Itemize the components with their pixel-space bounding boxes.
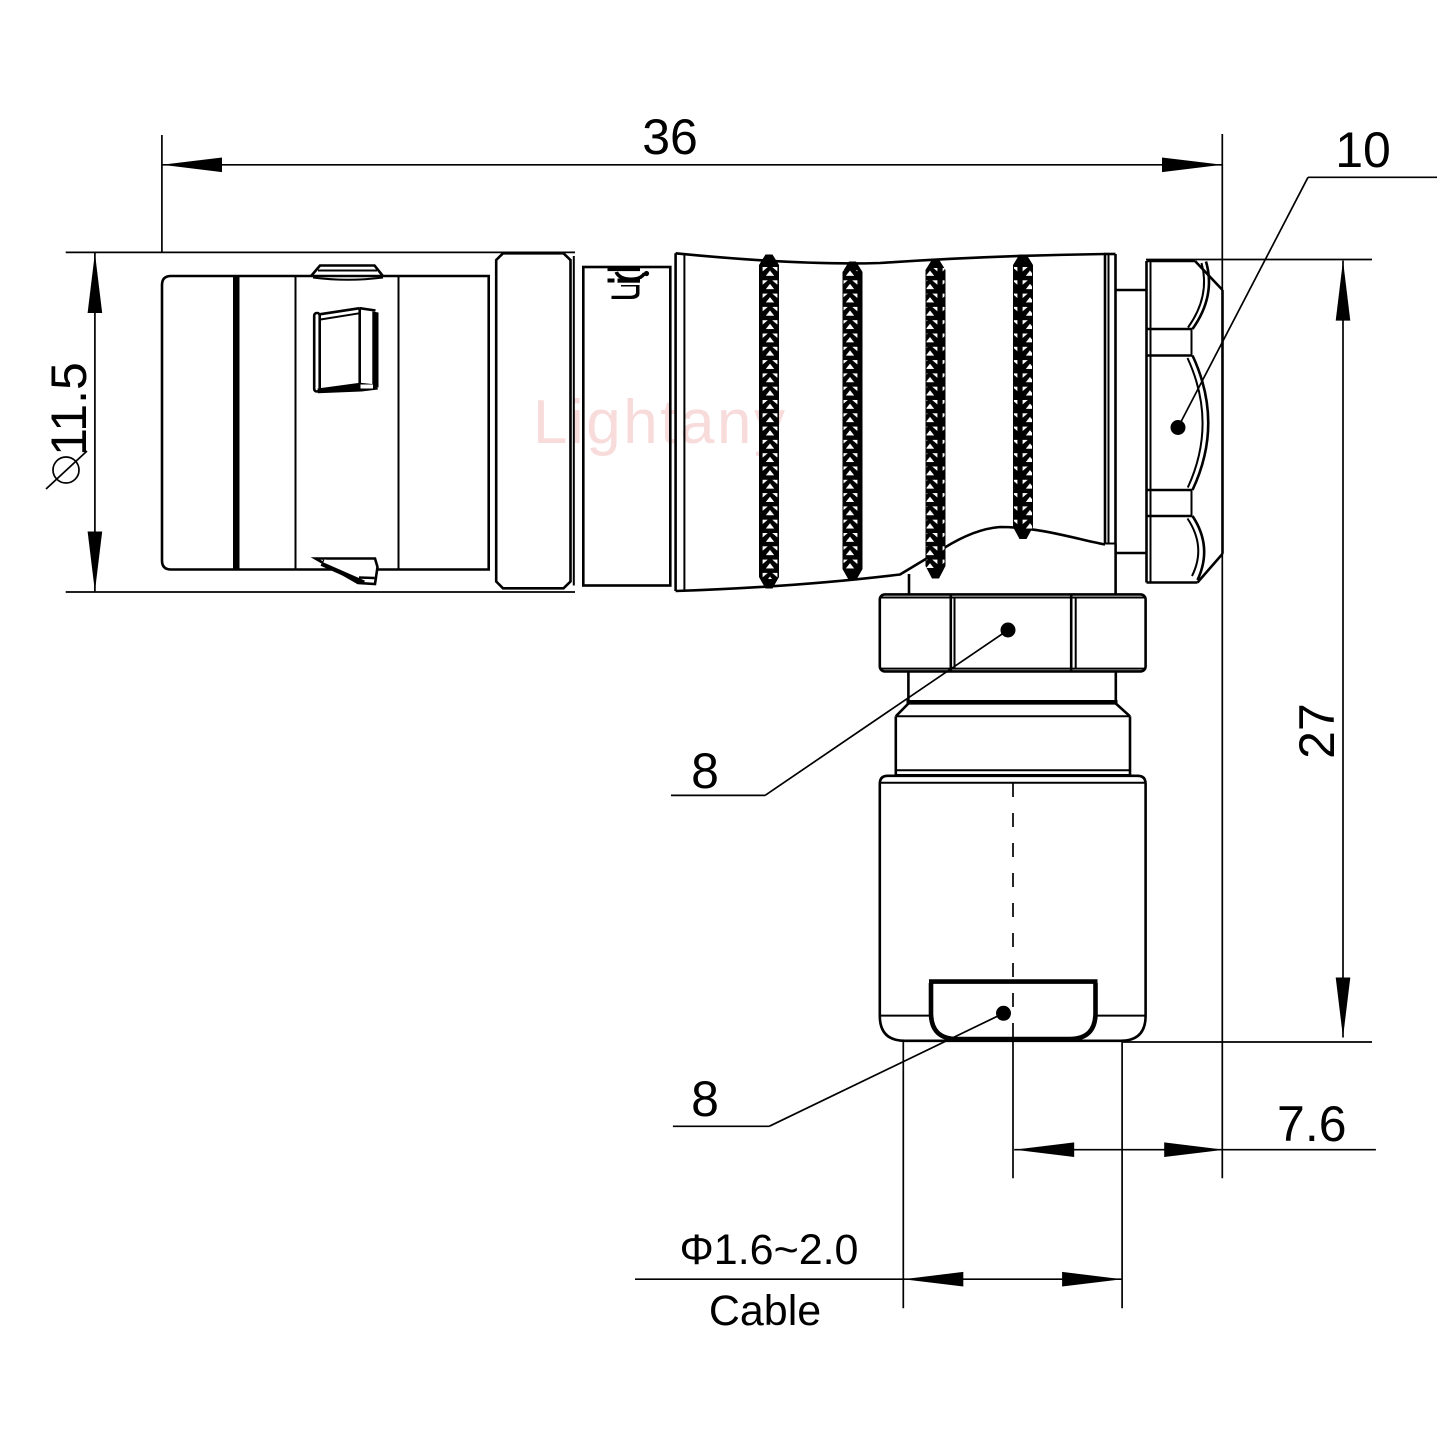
svg-text:8: 8 bbox=[691, 743, 719, 799]
svg-text:36: 36 bbox=[642, 109, 698, 165]
svg-text:8: 8 bbox=[691, 1071, 719, 1127]
svg-text:Cable: Cable bbox=[709, 1287, 821, 1335]
svg-text:7.6: 7.6 bbox=[1277, 1096, 1347, 1152]
svg-text:10: 10 bbox=[1335, 122, 1391, 178]
svg-text:11.5: 11.5 bbox=[41, 362, 97, 456]
svg-text:27: 27 bbox=[1289, 703, 1345, 759]
svg-text:Φ1.6~2.0: Φ1.6~2.0 bbox=[680, 1226, 859, 1274]
